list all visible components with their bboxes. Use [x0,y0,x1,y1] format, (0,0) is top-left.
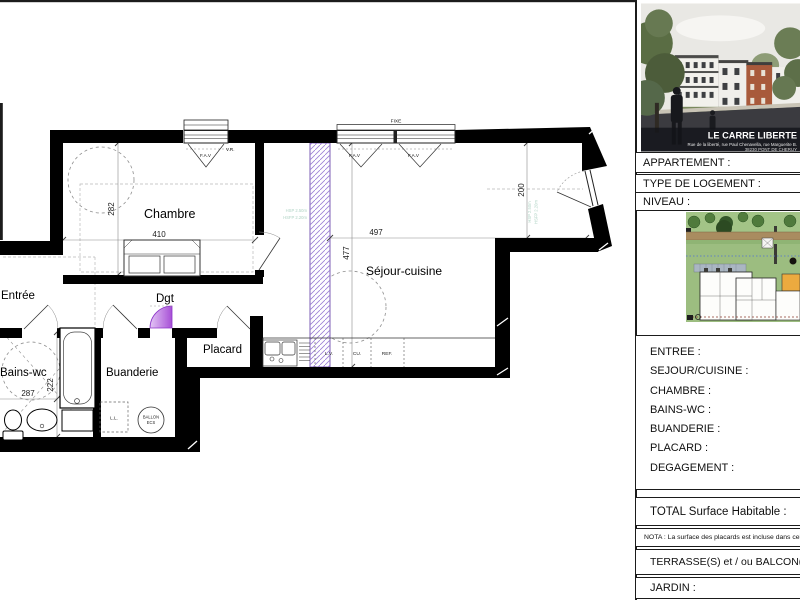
label-buanderie: Buanderie [106,367,158,379]
project-title: LE CARRE LIBERTE [708,131,797,141]
room-row-chambre: CHAMBRE : [636,382,800,401]
svg-text:FIXE: FIXE [391,119,402,125]
project-photo: LE CARRE LIBERTE Rue de la liberté, rue … [641,3,800,157]
svg-text:CU.: CU. [353,351,361,357]
svg-text:L.L.: L.L. [110,416,118,421]
total-surface-box: TOTAL Surface Habitable : [635,497,800,526]
site-plan-thumbnail [686,212,800,327]
room-row-entree: ENTREE : [636,343,800,362]
room-row-placard: PLACARD : [636,439,800,458]
balcony-door [557,170,598,207]
jardin-label: JARDIN : [650,582,696,594]
svg-text:HSP 2.50m: HSP 2.50m [286,208,308,213]
svg-text:HSP 2.50m: HSP 2.50m [527,201,532,223]
svg-text:V.R.: V.R. [226,147,235,152]
svg-text:287: 287 [21,389,35,398]
technical-shaft [310,143,330,367]
svg-text:477: 477 [342,246,351,260]
bedroom-window [184,120,232,167]
svg-text:F.A.V: F.A.V [349,153,361,158]
floorplan-sheet: Chambre Séjour-cuisine Entrée Dgt Placar… [0,0,800,600]
total-surface-label: TOTAL Surface Habitable : [650,506,787,518]
field-type-label: TYPE DE LOGEMENT : [643,178,761,190]
svg-text:BALLON: BALLON [143,415,159,420]
svg-text:REF.: REF. [382,351,392,357]
svg-text:L.V.: L.V. [325,351,333,357]
svg-text:200: 200 [517,183,526,197]
nota-text: NOTA : La surface des placards est inclu… [644,534,800,541]
terrasse-balcon-box: TERRASSE(S) et / ou BALCON(S) : [635,549,800,575]
floor-plan-drawing: Chambre Séjour-cuisine Entrée Dgt Placar… [0,0,636,600]
jardin-box: JARDIN : [635,577,800,599]
room-surfaces-box: ENTREE : SEJOUR/CUISINE : CHAMBRE : BAIN… [635,335,800,490]
svg-text:HSFP 2.20m: HSFP 2.20m [534,200,539,224]
nota-box: NOTA : La surface des placards est inclu… [635,528,800,547]
field-type-de-logement: TYPE DE LOGEMENT : [635,174,800,193]
bathtub [60,328,95,408]
terrasse-balcon-label: TERRASSE(S) et / ou BALCON(S) : [650,556,800,568]
dgt-highlighted-door [150,306,172,328]
room-row-degagement: DEGAGEMENT : [636,459,800,478]
field-appartement-label: APPARTEMENT : [643,157,730,169]
svg-text:F.A.V: F.A.V [408,153,420,158]
toilet [3,410,23,440]
svg-text:410: 410 [152,230,166,239]
field-appartement: APPARTEMENT : [635,152,800,173]
svg-text:282: 282 [107,202,116,216]
svg-text:ECS: ECS [147,420,156,425]
field-niveau-label: NIVEAU : [643,196,690,208]
photo-caption: LE CARRE LIBERTE Rue de la liberté, rue … [641,128,800,152]
washbasin [27,409,93,431]
room-row-sejour-cuisine: SEJOUR/CUISINE : [636,362,800,381]
svg-text:497: 497 [369,228,383,237]
label-bains: Bains-wc [0,367,47,379]
label-chambre: Chambre [144,207,195,221]
room-row-buanderie: BUANDERIE : [636,420,800,439]
living-room-window [337,125,455,168]
field-niveau: NIVEAU : [635,192,800,211]
label-placard: Placard [203,344,242,356]
bed [124,240,200,276]
room-row-bains-wc: BAINS-WC : [636,401,800,420]
svg-text:222: 222 [46,378,55,392]
svg-text:HSFP 2.20m: HSFP 2.20m [283,215,307,220]
label-dgt: Dgt [156,293,175,305]
label-sejour: Séjour-cuisine [366,264,442,278]
label-entree: Entrée [1,290,35,302]
wall-break-marks [188,127,608,449]
svg-text:F.A.V: F.A.V [200,153,212,158]
kitchen-counter [263,338,495,367]
